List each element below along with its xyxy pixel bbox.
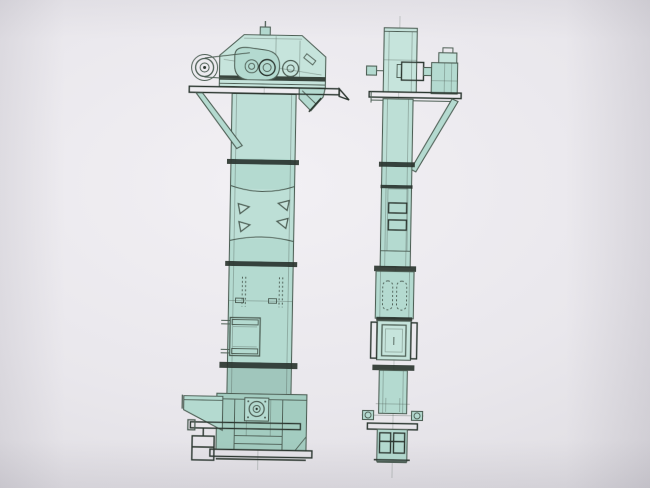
side-flange-plate xyxy=(371,322,378,358)
elevator-casing xyxy=(370,99,421,414)
front-elevation-view xyxy=(181,20,350,472)
casing-flange-joint xyxy=(372,365,414,371)
boot-shell xyxy=(377,429,408,462)
casing-flange-joint xyxy=(379,162,415,168)
support-brace xyxy=(411,98,458,172)
head-casing xyxy=(366,27,417,92)
boot-base-line xyxy=(374,460,410,461)
scanned-drawing-page xyxy=(0,0,650,488)
coupling xyxy=(423,67,431,75)
side-elevation-view xyxy=(359,15,462,479)
reducer-knob xyxy=(443,48,453,53)
platform-end-tip xyxy=(339,89,349,100)
shaft-stub xyxy=(366,66,376,75)
casing-upper-panel xyxy=(232,94,296,159)
panel-joint xyxy=(381,185,413,189)
casing-wide-section xyxy=(375,271,414,319)
inlet-hopper xyxy=(183,396,223,431)
reducer-top-box xyxy=(439,53,457,63)
vent-cap xyxy=(260,27,270,35)
boot-section xyxy=(210,393,313,460)
inspection-door-side xyxy=(371,321,418,361)
boot-flange-plate xyxy=(367,423,417,430)
boot-section xyxy=(361,410,424,463)
bucket-elevator-drawing xyxy=(0,0,650,488)
boot-base-plate xyxy=(210,449,312,458)
discharge-spout xyxy=(299,88,325,112)
casing-lower-panel xyxy=(228,367,291,393)
side-flange-plate xyxy=(411,323,418,359)
